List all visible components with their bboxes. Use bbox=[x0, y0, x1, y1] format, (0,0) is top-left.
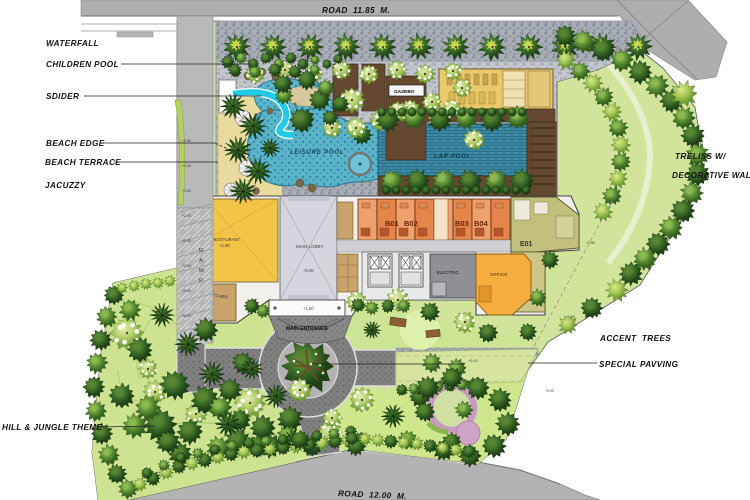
svg-text:+1.50: +1.50 bbox=[182, 189, 191, 193]
svg-text:SPECIAL PAVVING: SPECIAL PAVVING bbox=[599, 360, 679, 369]
svg-text:MAIN ENTRANCE: MAIN ENTRANCE bbox=[286, 326, 329, 332]
svg-text:+4.00: +4.00 bbox=[182, 314, 191, 318]
svg-text:GAZEBO: GAZEBO bbox=[394, 89, 415, 95]
svg-text:ROAD 11.85 M.: ROAD 11.85 M. bbox=[322, 6, 390, 15]
svg-text:+0.00: +0.00 bbox=[468, 359, 478, 363]
svg-text:+3.00: +3.00 bbox=[182, 264, 191, 268]
svg-text:P: P bbox=[199, 278, 203, 284]
svg-text:A: A bbox=[199, 258, 203, 264]
svg-text:+0.02: +0.02 bbox=[545, 389, 554, 393]
svg-text:+5.00: +5.00 bbox=[303, 268, 314, 273]
svg-text:B04: B04 bbox=[474, 219, 489, 228]
svg-text:+2.50: +2.50 bbox=[182, 239, 191, 243]
svg-text:ELECTRIC: ELECTRIC bbox=[437, 270, 459, 275]
svg-text:+2.50: +2.50 bbox=[586, 241, 595, 245]
svg-text:E01: E01 bbox=[520, 241, 533, 248]
svg-text:DECORATIVE WAL: DECORATIVE WAL bbox=[672, 171, 750, 180]
svg-text:+3.50: +3.50 bbox=[182, 289, 191, 293]
svg-text:B03: B03 bbox=[455, 219, 469, 228]
svg-text:HILL & JUNGLE THEME: HILL & JUNGLE THEME bbox=[2, 423, 103, 432]
svg-text:+1.00: +1.00 bbox=[219, 243, 230, 248]
svg-text:WATERFALL: WATERFALL bbox=[46, 39, 99, 48]
svg-text:BEACH EDGE: BEACH EDGE bbox=[46, 139, 105, 148]
svg-text:M: M bbox=[199, 268, 204, 274]
svg-text:+1.00: +1.00 bbox=[182, 164, 191, 168]
svg-text:ROAD 12.00 M.: ROAD 12.00 M. bbox=[338, 489, 407, 500]
svg-text:+0.50: +0.50 bbox=[182, 139, 191, 143]
svg-text:LAP POOL: LAP POOL bbox=[434, 154, 471, 160]
svg-text:CHILDREN POOL: CHILDREN POOL bbox=[46, 60, 119, 69]
svg-text:RESTAURANT: RESTAURANT bbox=[212, 237, 241, 242]
svg-text:MAIN LOBBY: MAIN LOBBY bbox=[296, 244, 324, 249]
svg-text:ACCENT TREES: ACCENT TREES bbox=[599, 334, 671, 343]
svg-text:+2.00: +2.00 bbox=[182, 214, 191, 218]
svg-text:JACUZZY: JACUZZY bbox=[45, 181, 87, 190]
svg-text:B02: B02 bbox=[404, 219, 418, 228]
svg-text:TRELISS W/: TRELISS W/ bbox=[675, 152, 726, 161]
svg-text:SDIDER: SDIDER bbox=[46, 92, 79, 101]
svg-text:+0.00: +0.00 bbox=[566, 315, 575, 319]
svg-text:BEACH TERRACE: BEACH TERRACE bbox=[45, 158, 121, 167]
svg-text:B01: B01 bbox=[385, 219, 399, 228]
svg-text:LEISURE POOL: LEISURE POOL bbox=[290, 150, 344, 156]
svg-text:OFFICE: OFFICE bbox=[490, 272, 508, 278]
svg-text:+1.80: +1.80 bbox=[303, 306, 314, 311]
svg-text:R: R bbox=[199, 248, 203, 254]
